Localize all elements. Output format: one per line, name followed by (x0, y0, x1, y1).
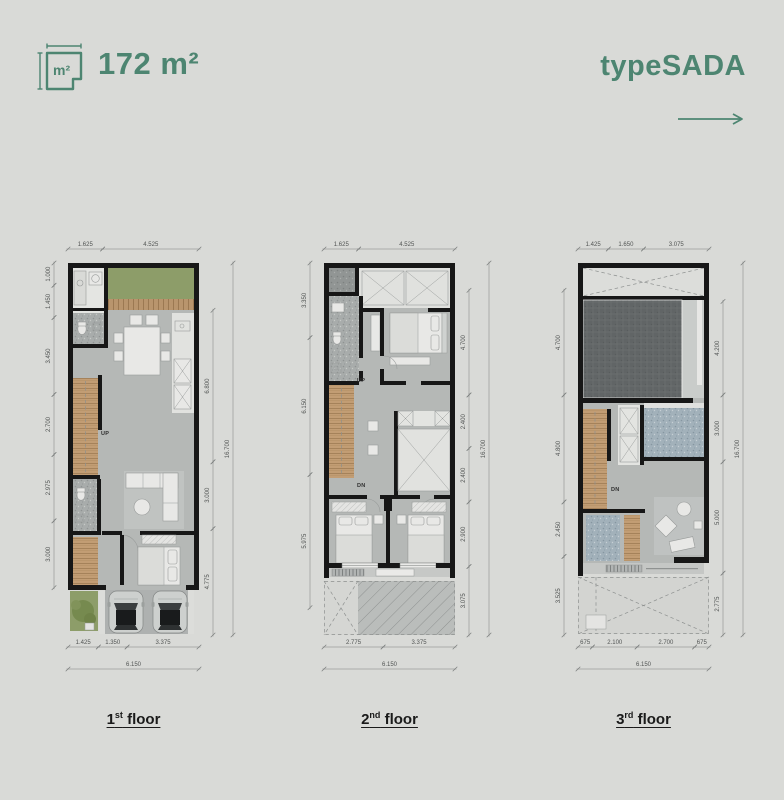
page: m² 172 m² typeSADA (0, 0, 784, 800)
svg-text:4.700: 4.700 (461, 334, 467, 350)
svg-text:4.775: 4.775 (205, 574, 211, 590)
svg-text:2.700: 2.700 (46, 416, 52, 432)
front-garden (70, 591, 98, 631)
roof-below (324, 581, 455, 635)
svg-text:3.000: 3.000 (715, 420, 721, 436)
svg-text:2.975: 2.975 (46, 480, 52, 496)
area-value: 172 m² (98, 46, 199, 82)
bathroom (644, 403, 704, 461)
living-area (124, 471, 184, 529)
svg-text:4.525: 4.525 (399, 242, 415, 248)
svg-text:2.775: 2.775 (346, 640, 362, 646)
svg-text:6.150: 6.150 (302, 398, 308, 414)
car-left (108, 591, 145, 633)
svg-text:2.900: 2.900 (461, 526, 467, 542)
svg-text:2.400: 2.400 (461, 414, 467, 430)
svg-text:1.450: 1.450 (46, 293, 52, 309)
car-right (152, 591, 189, 633)
svg-text:5.000: 5.000 (715, 509, 721, 525)
plan-drawing-3: DN (578, 263, 709, 634)
icon-m2-label: m² (53, 62, 70, 78)
svg-text:1.425: 1.425 (586, 242, 602, 248)
svg-text:1.625: 1.625 (334, 242, 350, 248)
type-name: typeSADA (600, 50, 746, 83)
svg-text:675: 675 (697, 640, 708, 646)
side-deck (73, 537, 98, 585)
svg-text:2.450: 2.450 (556, 521, 562, 537)
svg-text:4.200: 4.200 (715, 340, 721, 356)
svg-text:4.800: 4.800 (556, 440, 562, 456)
floorplan-1st-floor: UP (24, 233, 264, 703)
svg-text:6.150: 6.150 (382, 662, 398, 668)
svg-text:6.150: 6.150 (636, 662, 652, 668)
svg-text:3.350: 3.350 (302, 292, 308, 308)
svg-text:4.525: 4.525 (143, 242, 159, 248)
svg-text:675: 675 (580, 640, 591, 646)
svg-text:5.975: 5.975 (302, 533, 308, 549)
void-over-living (394, 411, 450, 495)
wardrobe-closet (359, 268, 450, 308)
svg-text:3.000: 3.000 (205, 487, 211, 503)
svg-text:16.700: 16.700 (225, 439, 231, 458)
right-arrow-icon[interactable] (676, 112, 748, 126)
svg-text:2.700: 2.700 (658, 640, 674, 646)
entry-service-rooms (73, 268, 104, 346)
svg-text:3.075: 3.075 (461, 593, 467, 609)
svg-text:16.700: 16.700 (735, 439, 741, 458)
balcony (329, 268, 359, 296)
svg-text:2.100: 2.100 (607, 640, 623, 646)
svg-text:3.525: 3.525 (556, 588, 562, 604)
svg-text:4.700: 4.700 (556, 334, 562, 350)
svg-text:1.000: 1.000 (46, 266, 52, 282)
dn-label: DN (357, 483, 366, 489)
svg-text:1.425: 1.425 (76, 640, 92, 646)
svg-text:1.625: 1.625 (78, 242, 94, 248)
up-label: UP (101, 431, 109, 437)
dn-label: DN (611, 487, 620, 493)
area-plan-icon: m² (34, 38, 90, 98)
bottom-wall-windows (329, 563, 450, 577)
up-label: UP (357, 378, 365, 384)
plan-drawing-1: UP (68, 263, 199, 634)
kitchen (172, 313, 194, 413)
svg-text:3.375: 3.375 (412, 640, 428, 646)
floorplan-3-drawing: DN (534, 233, 774, 703)
cabinets (618, 405, 644, 465)
floorplan-3rd-floor: DN (534, 233, 774, 703)
floor-3-label: 3rd floor (578, 710, 709, 728)
bathroom (329, 296, 363, 385)
shelf-strip (583, 563, 704, 574)
open-terrace (578, 577, 709, 634)
svg-text:1.350: 1.350 (105, 640, 121, 646)
roof-deck (583, 300, 704, 403)
svg-text:3.375: 3.375 (156, 640, 172, 646)
svg-text:6.800: 6.800 (205, 378, 211, 394)
family-area (654, 497, 709, 563)
floorplan-1-drawing: UP (24, 233, 264, 703)
floor-1-label: 1st floor (68, 710, 199, 728)
svg-text:3.450: 3.450 (46, 348, 52, 364)
svg-text:2.775: 2.775 (715, 596, 721, 612)
svg-text:6.150: 6.150 (126, 662, 142, 668)
bedrooms-lower (329, 495, 450, 568)
floorplan-2nd-floor: UP DN (280, 233, 520, 703)
svg-text:3.075: 3.075 (669, 242, 685, 248)
svg-text:3.000: 3.000 (46, 546, 52, 562)
svg-text:16.700: 16.700 (481, 439, 487, 458)
plan-drawing-2: UP DN (324, 263, 455, 635)
svg-text:1.650: 1.650 (618, 242, 634, 248)
bathroom (73, 475, 101, 535)
lower-left-rooms (583, 509, 645, 561)
void-top (583, 268, 704, 300)
floor-2-label: 2nd floor (324, 710, 455, 728)
floorplan-2-drawing: UP DN (280, 233, 520, 703)
svg-text:2.400: 2.400 (461, 467, 467, 483)
